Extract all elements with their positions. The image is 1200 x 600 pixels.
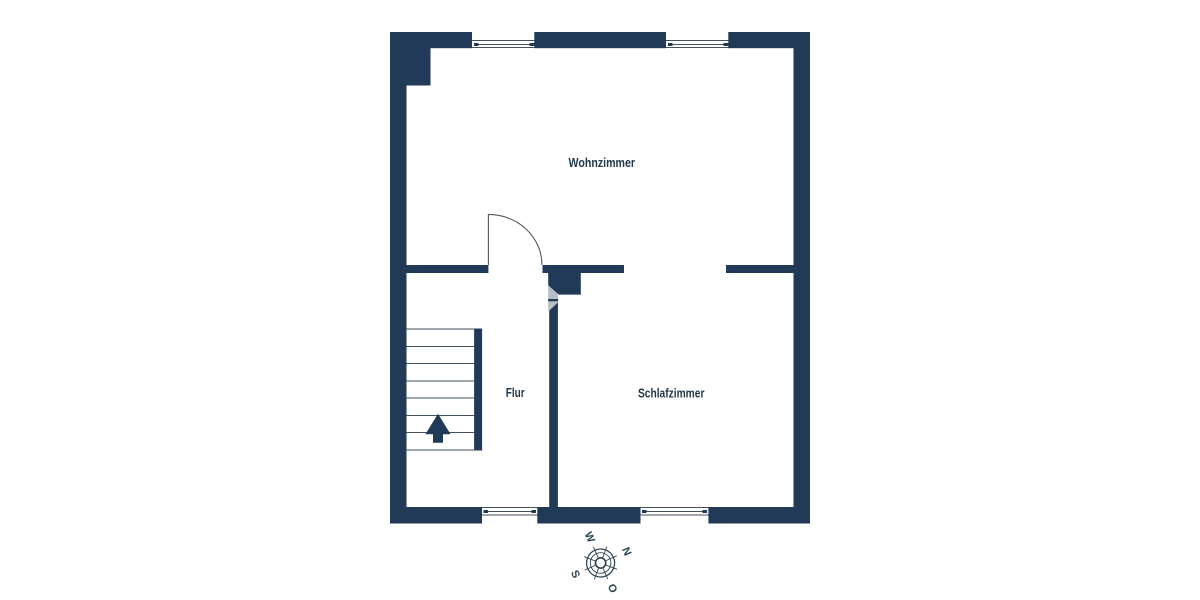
svg-text:Wohnzimmer: Wohnzimmer: [569, 156, 636, 170]
svg-text:Flur: Flur: [506, 386, 525, 400]
svg-text:Schlafzimmer: Schlafzimmer: [638, 387, 705, 401]
